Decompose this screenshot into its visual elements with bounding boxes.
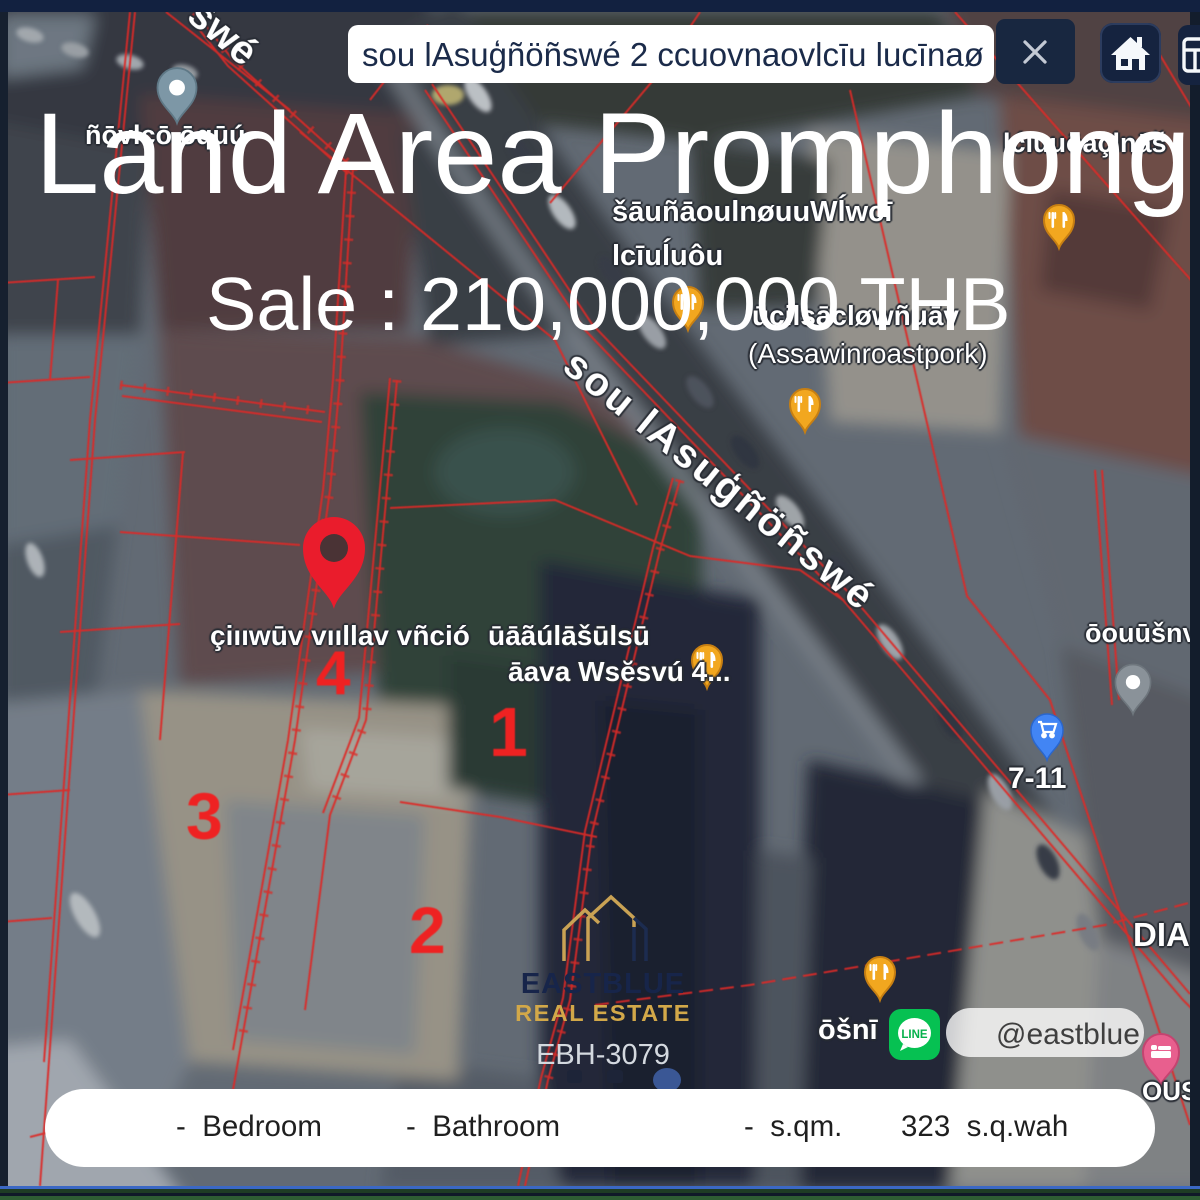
svg-text:LINE: LINE <box>901 1029 928 1041</box>
